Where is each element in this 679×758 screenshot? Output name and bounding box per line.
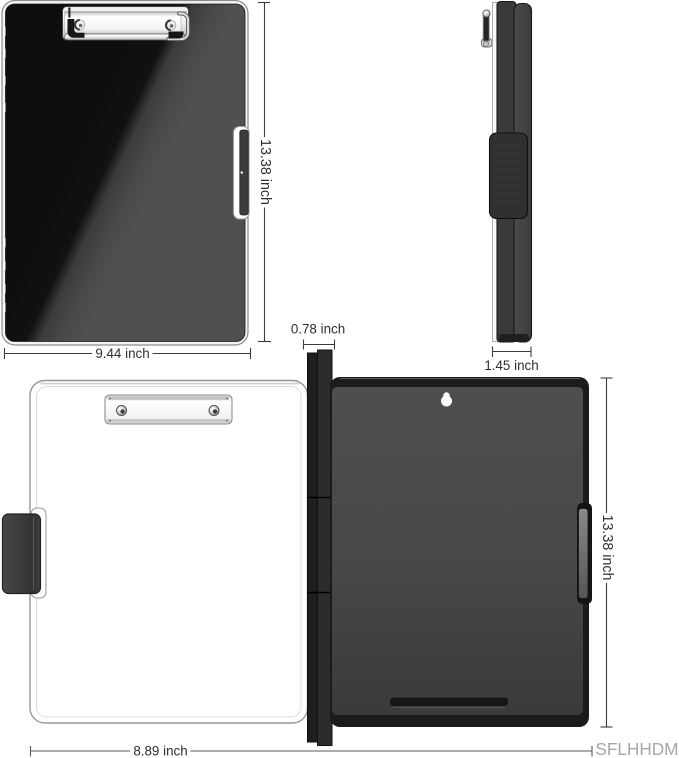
svg-text:13.38 inch: 13.38 inch <box>599 515 615 581</box>
svg-text:13.38 inch: 13.38 inch <box>257 139 273 205</box>
svg-text:SFLHHDM: SFLHHDM <box>595 739 678 758</box>
svg-text:9.44 inch: 9.44 inch <box>95 346 149 361</box>
svg-text:0.78 inch: 0.78 inch <box>291 322 345 337</box>
svg-text:1.45 inch: 1.45 inch <box>484 358 538 373</box>
svg-text:8.89 inch: 8.89 inch <box>133 744 187 758</box>
